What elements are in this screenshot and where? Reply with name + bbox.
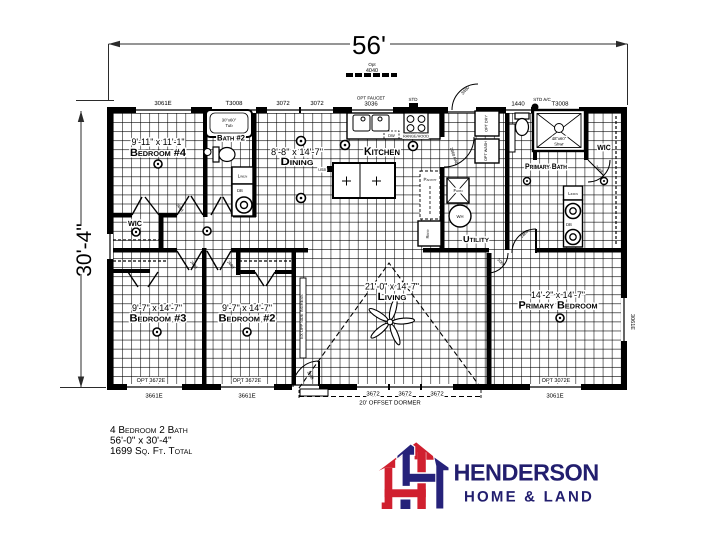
- svg-text:3672: 3672: [366, 391, 380, 398]
- svg-text:56': 56': [352, 30, 386, 60]
- svg-text:Primary Bedroom: Primary Bedroom: [519, 300, 598, 312]
- svg-text:Bedroom #4: Bedroom #4: [130, 147, 186, 159]
- svg-text:Linen: Linen: [568, 191, 578, 196]
- svg-text:DW: DW: [388, 133, 395, 138]
- svg-text:Shwr: Shwr: [554, 142, 564, 147]
- svg-text:WIC: WIC: [128, 219, 143, 228]
- svg-text:3672: 3672: [430, 391, 444, 398]
- svg-text:HENDERSON: HENDERSON: [454, 460, 599, 486]
- svg-text:STD: STD: [409, 97, 419, 102]
- svg-text:Utility: Utility: [463, 234, 489, 244]
- svg-text:DB: DB: [237, 188, 243, 193]
- svg-text:OPT 3072E: OPT 3072E: [542, 378, 571, 384]
- svg-text:4 Bedroom 2 Bath: 4 Bedroom 2 Bath: [110, 425, 188, 436]
- svg-text:OPT 3672E: OPT 3672E: [137, 378, 166, 384]
- svg-text:3061E: 3061E: [154, 100, 171, 107]
- svg-text:1440: 1440: [511, 101, 525, 108]
- svg-text:Primary Bath: Primary Bath: [525, 162, 567, 171]
- svg-text:3661E: 3661E: [145, 393, 162, 400]
- svg-text:30"x60": 30"x60": [222, 118, 237, 123]
- svg-text:DB: DB: [566, 222, 572, 227]
- svg-text:3661E: 3661E: [238, 393, 255, 400]
- svg-text:USB: USB: [318, 168, 326, 172]
- svg-text:STD A/C: STD A/C: [533, 97, 551, 102]
- svg-text:Bedroom #3: Bedroom #3: [130, 313, 187, 325]
- svg-text:Living: Living: [378, 291, 408, 303]
- svg-text:Furn: Furn: [453, 188, 462, 193]
- svg-text:EX OPP SIDE INGRESS: EX OPP SIDE INGRESS: [299, 294, 304, 339]
- svg-text:56'-0" x 30'-4": 56'-0" x 30'-4": [110, 436, 172, 447]
- svg-text:Tub: Tub: [225, 123, 233, 128]
- svg-text:OPT 3672E: OPT 3672E: [233, 378, 262, 384]
- svg-text:3072: 3072: [276, 100, 290, 107]
- svg-text:30'-4": 30'-4": [73, 223, 96, 277]
- svg-text:RANGE/HOOD: RANGE/HOOD: [403, 135, 429, 139]
- svg-text:HOME & LAND: HOME & LAND: [464, 489, 594, 506]
- svg-text:48"x60": 48"x60": [552, 136, 567, 141]
- svg-text:Bath #2: Bath #2: [217, 134, 246, 143]
- svg-text:3036: 3036: [364, 101, 378, 108]
- svg-text:WH: WH: [457, 214, 464, 219]
- svg-text:Refr: Refr: [425, 229, 430, 239]
- svg-text:OPT DRY: OPT DRY: [485, 115, 489, 132]
- svg-text:Linen: Linen: [238, 174, 248, 179]
- svg-text:T3008: T3008: [225, 100, 243, 107]
- svg-text:20' OFFSET DORMER: 20' OFFSET DORMER: [359, 400, 421, 407]
- svg-text:3672: 3672: [398, 391, 412, 398]
- svg-text:Bedroom #2: Bedroom #2: [219, 313, 276, 325]
- svg-text:3061E: 3061E: [629, 314, 635, 330]
- svg-text:Pantry: Pantry: [423, 177, 436, 182]
- svg-text:Dining: Dining: [281, 156, 315, 168]
- svg-text:T3008: T3008: [551, 101, 569, 108]
- svg-text:3061E: 3061E: [546, 393, 563, 400]
- svg-text:WIC: WIC: [597, 143, 611, 152]
- svg-text:Opt: Opt: [368, 62, 376, 67]
- svg-text:OPT WASH: OPT WASH: [484, 141, 488, 161]
- svg-text:1699 Sq. Ft. Total: 1699 Sq. Ft. Total: [110, 446, 192, 457]
- svg-text:3072: 3072: [310, 100, 324, 107]
- svg-text:OPT FAUCET: OPT FAUCET: [357, 96, 385, 101]
- svg-text:Kitchen: Kitchen: [364, 146, 400, 158]
- svg-text:4040: 4040: [366, 68, 378, 74]
